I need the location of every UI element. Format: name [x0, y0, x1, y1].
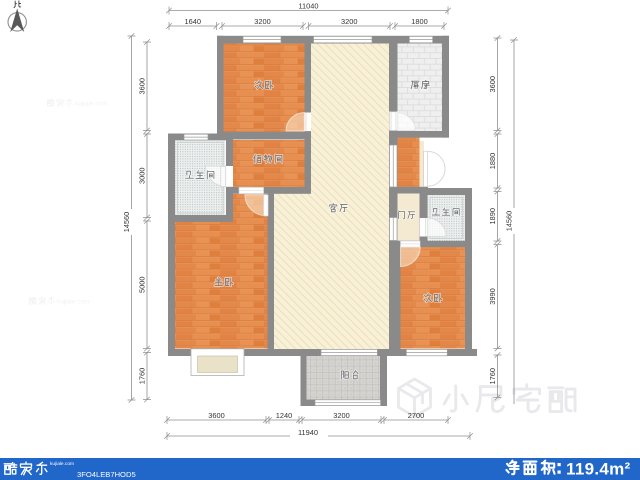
svg-text:1760: 1760 — [138, 368, 147, 384]
svg-text:11940: 11940 — [298, 428, 318, 437]
svg-text:14560: 14560 — [122, 212, 131, 233]
svg-text:3000: 3000 — [138, 168, 147, 184]
svg-text:1240: 1240 — [276, 411, 292, 420]
svg-text:1890: 1890 — [488, 208, 497, 224]
svg-text:3600: 3600 — [488, 76, 497, 92]
svg-text:5000: 5000 — [138, 277, 147, 293]
svg-text:14560: 14560 — [505, 211, 514, 232]
svg-text:3200: 3200 — [333, 411, 349, 420]
svg-text:11040: 11040 — [298, 1, 318, 10]
svg-text:1760: 1760 — [488, 368, 497, 384]
svg-text:119.4m²: 119.4m² — [566, 460, 631, 479]
svg-text:3600: 3600 — [138, 78, 147, 94]
svg-text:3200: 3200 — [341, 17, 357, 26]
svg-text:2700: 2700 — [408, 411, 424, 420]
svg-text:1800: 1800 — [411, 17, 427, 26]
svg-text:3FO4LEB7HOD5: 3FO4LEB7HOD5 — [77, 470, 136, 479]
svg-text:3200: 3200 — [254, 17, 270, 26]
svg-text:3990: 3990 — [488, 288, 497, 304]
svg-text:1640: 1640 — [185, 17, 201, 26]
svg-text:kujiale.com: kujiale.com — [75, 101, 108, 108]
svg-text:1880: 1880 — [488, 153, 497, 169]
svg-text:3600: 3600 — [208, 411, 224, 420]
svg-text:kujiale.com: kujiale.com — [50, 461, 74, 467]
svg-text:kujiale.com: kujiale.com — [57, 299, 90, 306]
